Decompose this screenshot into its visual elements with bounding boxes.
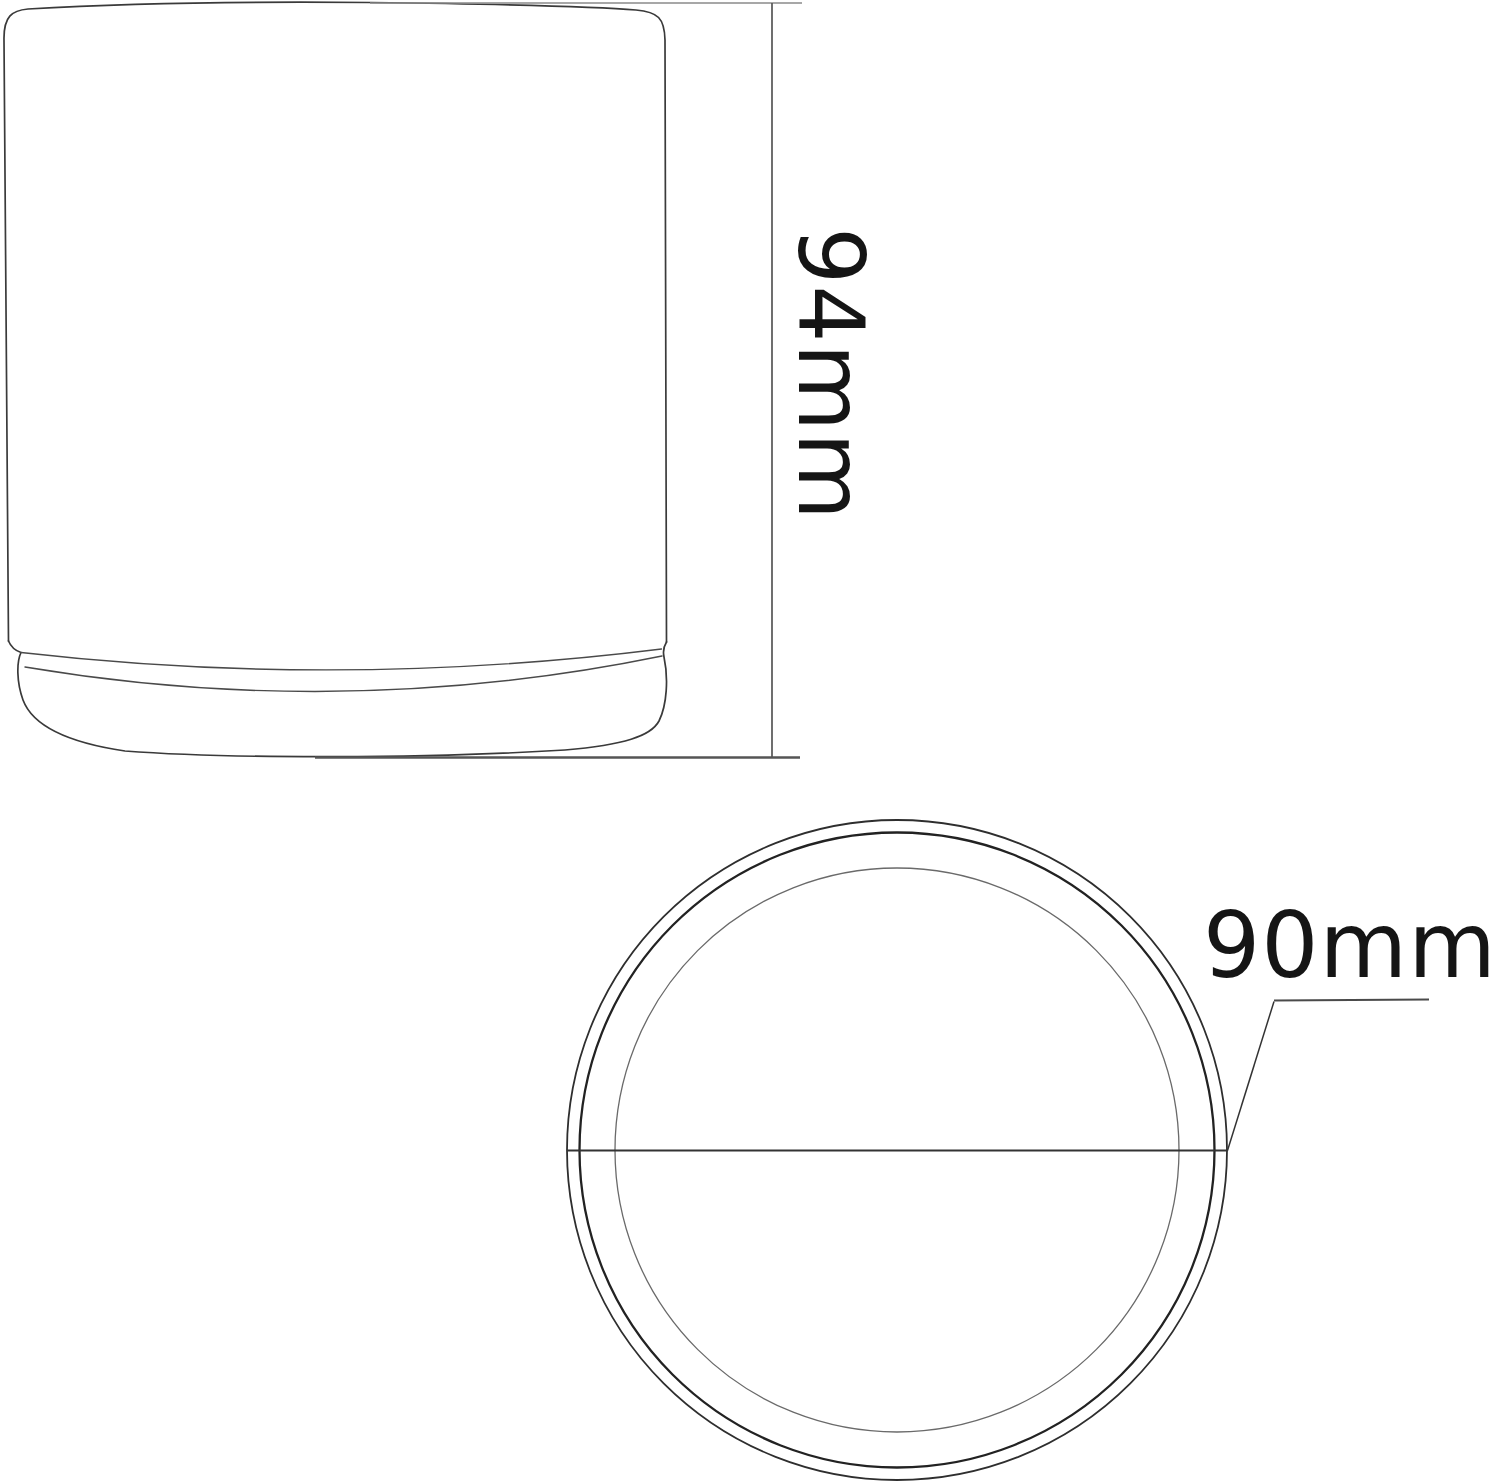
technical-drawing-canvas: 94mm 90mm xyxy=(0,0,1500,1484)
side-view: 94mm xyxy=(4,2,883,757)
base-seam-upper xyxy=(21,649,662,670)
dimension-diagram: 94mm 90mm xyxy=(0,0,1500,1484)
bottom-view: 90mm xyxy=(567,820,1497,1480)
diameter-dimension-label: 90mm xyxy=(1203,893,1497,998)
diameter-leader-underline xyxy=(1274,1000,1429,1001)
pot-body-outline xyxy=(4,2,667,642)
diameter-leader-line xyxy=(1228,1002,1275,1151)
height-dimension-label: 94mm xyxy=(778,227,883,521)
